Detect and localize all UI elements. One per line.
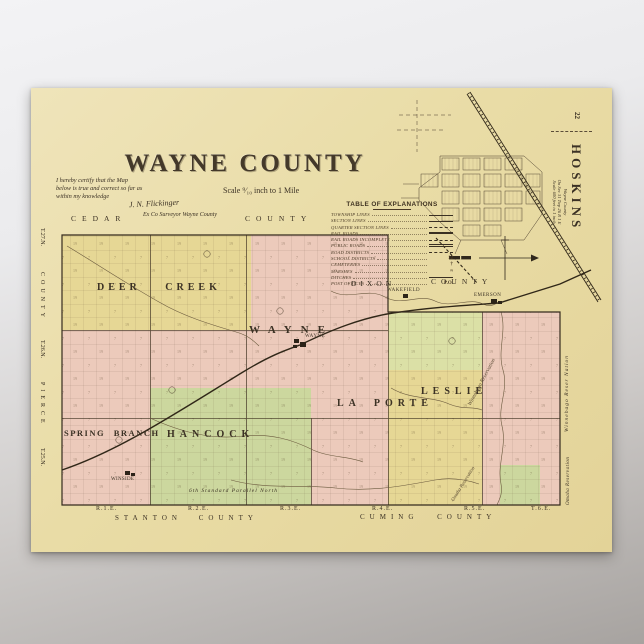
left-edge-label-t27n: T.27.N. <box>38 228 45 246</box>
scale-note: Scale ⁹⁄₁₀ inch to 1 Mile <box>223 187 299 196</box>
legend-item-label: RAIL ROADS INCOMPLETE <box>331 237 390 242</box>
township-label-deer-creek: DEER CREEK <box>97 282 221 293</box>
range-label-r1e: R.1.E. <box>96 506 117 513</box>
inset-caption-line: Scale 600 feet to 1 inch <box>552 156 558 248</box>
legend-item-label: SECTION LINES <box>331 218 366 223</box>
legend-symbol-cemeteries: † <box>429 262 453 267</box>
legend-row: PUBLIC ROADS <box>331 243 453 248</box>
legend-symbol-public-roads <box>429 244 453 247</box>
section-road-dashes <box>397 100 451 152</box>
range-label-t6e: T.6.E. <box>531 506 551 513</box>
legend-item-label: DITCHES <box>331 275 351 280</box>
legend-title: TABLE OF EXPLANATIONS <box>331 201 453 208</box>
inset-title: HOSKINS <box>569 144 583 252</box>
neighbor-label-cuming-county: CUMING COUNTY <box>360 514 496 522</box>
township-label-spring-branch: SPRING BRANCH <box>64 429 160 438</box>
legend-symbol-railroads <box>429 232 453 234</box>
certification-line-2: below is true and correct so far as <box>56 186 142 193</box>
legend-symbol-marshes: ≈ <box>429 269 453 274</box>
legend-symbol-school-districts: 12 <box>429 256 453 261</box>
legend-symbol-section-lines <box>429 221 453 222</box>
range-label-r4e: R.4.E. <box>372 506 393 513</box>
township-label-hancock: HANCOCK <box>167 429 254 440</box>
legend-item-label: ROAD DISTRICTS <box>331 250 369 255</box>
compass-rose <box>479 236 539 280</box>
legend-item-label: QUARTER SECTION LINES <box>331 225 389 230</box>
page-edge-dashes <box>551 131 592 132</box>
certification-line-1: I hereby certify that the Map <box>56 178 128 185</box>
legend-row: SECTION LINES <box>331 218 453 223</box>
map-title: WAYNE COUNTY <box>115 150 375 178</box>
legend-rule <box>373 209 411 210</box>
legend-item-label: MARSHES <box>331 269 353 274</box>
legend-row: MARSHES≈ <box>331 269 453 274</box>
range-label-r3e: R.3.E. <box>280 506 301 513</box>
left-edge-label-t25n: T.25.N. <box>38 448 45 466</box>
legend-row: QUARTER SECTION LINES <box>331 225 453 230</box>
town-label-emerson: EMERSON <box>474 293 501 299</box>
town-label-wakefield: WAKEFIELD <box>387 288 420 294</box>
legend-symbol-quarter-section <box>429 227 453 228</box>
left-edge-label-t26n: T.26.N. <box>38 340 45 358</box>
legend-item-label: CEMETERIES <box>331 262 360 267</box>
neighbor-label-dixon-county: COUNTY <box>431 278 492 286</box>
inset-caption-line: On Sec 31 Twp 26 R 1 E <box>557 156 563 248</box>
legend-row: ROAD DISTRICTS <box>331 250 453 255</box>
range-label-r2e: R.2.E. <box>188 506 209 513</box>
range-label-r5e: R.5.E. <box>464 506 485 513</box>
legend-item-label: TOWNSHIP LINES <box>331 212 370 217</box>
legend-symbol-township-lines <box>429 215 453 216</box>
page-number: 22 <box>572 112 580 119</box>
neighbor-label-cedar: CEDAR <box>71 215 126 223</box>
legend-row: SCHOOL DISTRICTS12 <box>331 256 453 261</box>
legend: TABLE OF EXPLANATIONS TOWNSHIP LINES SEC… <box>331 201 453 286</box>
certification-line-3: within my knowledge <box>56 194 109 201</box>
legend-row: RAIL ROADS INCOMPLETE <box>331 237 453 242</box>
legend-row: CEMETERIES† <box>331 262 453 267</box>
legend-item-label: RAIL ROADS <box>331 231 358 236</box>
legend-item-label: SCHOOL DISTRICTS <box>331 256 375 261</box>
neighbor-label-stanton-county: STANTON COUNTY <box>115 515 258 523</box>
annotation-omaha-edge: Omaha Reservation <box>566 441 572 505</box>
map-poster: 7 19 <box>31 88 612 552</box>
annotation-winnebago-edge: Winnebago Reser Nation <box>564 290 570 432</box>
legend-row: RAIL ROADS <box>331 231 453 236</box>
legend-item-label: PUBLIC ROADS <box>331 243 365 248</box>
legend-symbol-road-districts <box>429 252 453 253</box>
legend-symbol-railroads-incomplete <box>429 240 453 241</box>
left-edge-label-county: COUNTY <box>38 272 45 321</box>
inset-caption-line: Wayne County <box>563 156 569 248</box>
annotation-standard-parallel: 6th Standard Parallel North <box>189 488 278 494</box>
town-label-wayne: WAYNE <box>305 334 325 340</box>
surveyor-title: Ex Co Surveyor Wayne County <box>143 212 217 219</box>
town-label-winside: WINSIDE <box>111 477 134 483</box>
legend-row: TOWNSHIP LINES <box>331 212 453 217</box>
township-label-la-porte: LA PORTE <box>337 398 433 409</box>
neighbor-label-dixon: DIXON <box>351 280 395 288</box>
neighbor-label-cedar-county: COUNTY <box>245 215 312 223</box>
left-edge-label-pierce: PIERCE <box>38 382 45 427</box>
inset-caption: Wayne County On Sec 31 Twp 26 R 1 E Scal… <box>552 156 569 248</box>
product-photo-background: 7 19 <box>0 0 644 644</box>
